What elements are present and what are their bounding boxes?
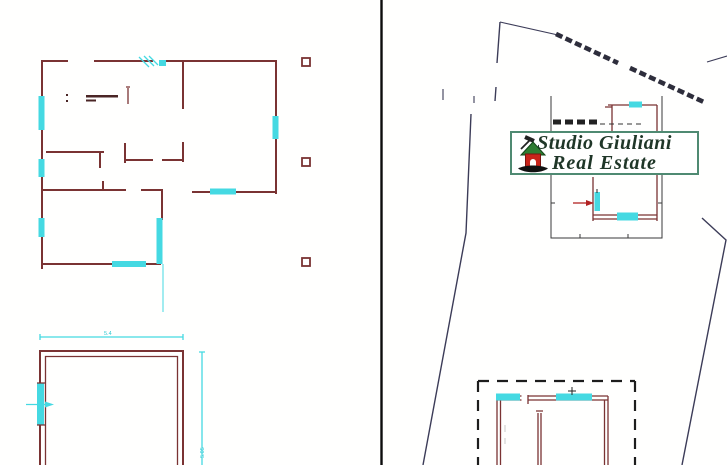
annex-window-left: [496, 394, 520, 401]
drawing-svg: 5.4 5.05: [0, 0, 727, 465]
annex-window-right: [556, 394, 592, 401]
building-bottom-window: [617, 213, 638, 221]
annex-building: [478, 381, 635, 465]
illegible-room-label: [66, 94, 118, 102]
column-markers: [302, 58, 310, 266]
agency-logo: Studio Giuliani Real Estate: [510, 131, 699, 175]
hand-icon: [518, 166, 548, 173]
height-dimension-label: 5.05: [200, 447, 206, 458]
lower-floor-plan: 5.4 5.05: [26, 331, 206, 465]
boundary-top-thin: [500, 22, 727, 62]
cad-drawing-page: 5.4 5.05: [0, 0, 727, 465]
boundary-hatched-1: [556, 34, 618, 63]
building-entrance-door: [595, 192, 601, 211]
label-mark: [126, 87, 130, 104]
plot-ticks: [551, 203, 662, 238]
boundary-left: [423, 22, 500, 465]
building-top-window: [629, 102, 642, 108]
annex-walls: [497, 396, 608, 465]
width-dimension-label: 5.4: [104, 331, 112, 337]
annex-door-gap: [522, 394, 528, 402]
lower-room-inner-wall: [46, 357, 178, 465]
boundary-right: [682, 218, 726, 465]
boundary-hatched-2: [630, 68, 706, 103]
boundary-ticks: [443, 89, 474, 103]
lower-room-outer-wall: [40, 351, 183, 465]
entrance-arrow: [573, 200, 594, 206]
upper-floor-plan: [39, 56, 311, 312]
windows: [39, 60, 279, 267]
house-logo-icon: [513, 133, 553, 173]
